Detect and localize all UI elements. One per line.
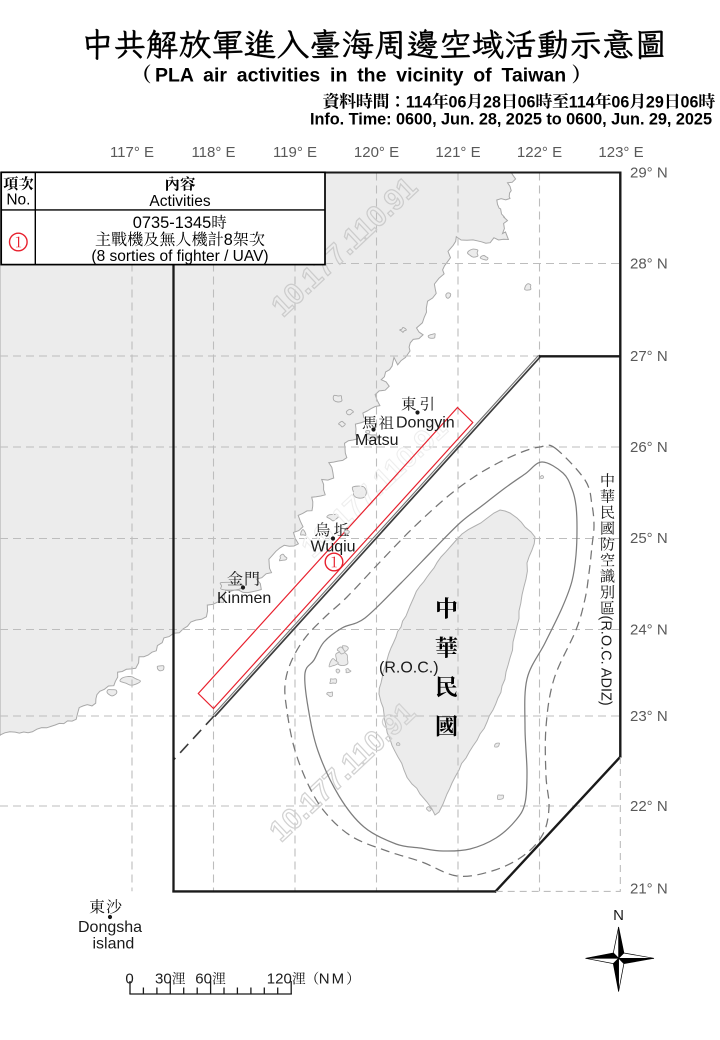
svg-text:27° N: 27° N (630, 348, 668, 365)
svg-text:119° E: 119° E (273, 144, 317, 161)
svg-text:8: 8 (224, 231, 233, 249)
svg-text:25° N: 25° N (630, 530, 668, 547)
svg-text:24° N: 24° N (630, 622, 668, 639)
svg-text:28: 28 (483, 93, 501, 111)
svg-text:No.: No. (6, 192, 30, 209)
svg-text:(R.O.C.): (R.O.C.) (379, 660, 439, 677)
svg-text:(8 sorties of fighter / UAV): (8 sorties of fighter / UAV) (91, 248, 268, 265)
svg-text:Wuqiu: Wuqiu (311, 539, 356, 556)
svg-text:PLA air activities in the vici: PLA air activities in the vicinity of Ta… (155, 65, 566, 87)
svg-text:island: island (93, 936, 135, 953)
svg-text:118° E: 118° E (191, 144, 235, 161)
svg-text:Dongyin: Dongyin (396, 415, 455, 432)
svg-text:Dongsha: Dongsha (78, 919, 142, 936)
svg-text:120° E: 120° E (354, 144, 399, 161)
svg-text:Info. Time: 0600, Jun. 28, 202: Info. Time: 0600, Jun. 28, 2025 to 0600,… (310, 110, 712, 128)
svg-text:0: 0 (125, 971, 133, 988)
svg-text:26° N: 26° N (630, 439, 668, 456)
svg-text:22° N: 22° N (630, 798, 668, 815)
svg-text:Matsu: Matsu (355, 432, 399, 449)
svg-text:06: 06 (518, 93, 536, 111)
svg-text:29: 29 (646, 93, 664, 111)
svg-text:114: 114 (569, 93, 596, 111)
svg-text:N: N (613, 907, 624, 924)
svg-text:NM: NM (319, 971, 346, 988)
svg-text:06: 06 (449, 93, 467, 111)
svg-text:21° N: 21° N (630, 881, 668, 898)
svg-text:121° E: 121° E (435, 144, 480, 161)
svg-text:Activities: Activities (149, 193, 210, 210)
svg-text:114: 114 (406, 93, 433, 111)
svg-text:06: 06 (611, 93, 629, 111)
svg-text:23° N: 23° N (630, 708, 668, 725)
svg-text:120: 120 (267, 971, 292, 988)
svg-text:60: 60 (195, 971, 212, 988)
svg-text:06: 06 (681, 93, 699, 111)
svg-text:122° E: 122° E (517, 144, 562, 161)
svg-text:(R.O.C. ADIZ): (R.O.C. ADIZ) (598, 616, 614, 706)
svg-text:117° E: 117° E (110, 144, 154, 161)
svg-text:123° E: 123° E (598, 144, 643, 161)
svg-text:0735-1345: 0735-1345 (133, 214, 211, 232)
svg-text:30: 30 (155, 971, 172, 988)
svg-text:29° N: 29° N (630, 165, 668, 182)
svg-text:28° N: 28° N (630, 256, 668, 273)
svg-text:Kinmen: Kinmen (217, 590, 271, 607)
